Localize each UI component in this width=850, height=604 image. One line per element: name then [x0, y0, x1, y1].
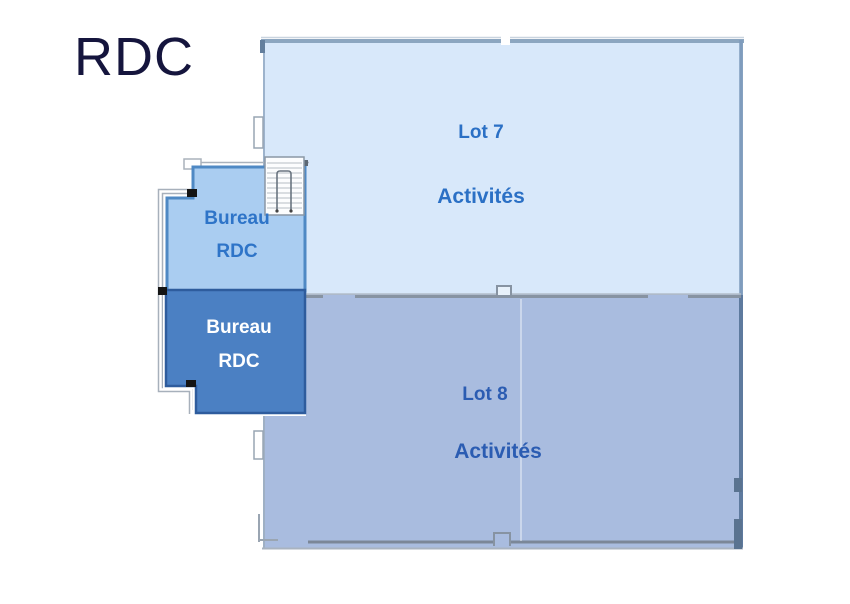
bureau-upper-label-line1: Bureau	[204, 202, 269, 235]
bureau-lower-label-line2: RDC	[206, 345, 271, 379]
lot7-category-label: Activités	[437, 185, 525, 209]
bureau-lower-label: Bureau RDC	[206, 311, 271, 379]
right-wall-stub-upper	[734, 478, 742, 492]
door-mark-bottom	[186, 380, 196, 387]
page-title: RDC	[74, 26, 194, 88]
bottom-door-bump	[494, 533, 510, 546]
staircase-icon	[265, 157, 304, 215]
lot8-left-window	[254, 431, 263, 459]
door-mark-top	[187, 189, 197, 197]
lot7-label: Lot 7	[458, 122, 503, 144]
right-wall-stub-lower	[734, 519, 742, 549]
floor-plan	[0, 0, 850, 604]
bureau-upper-label-line2: RDC	[204, 235, 269, 268]
floor-plan-page: RDC Lot 7 Activités Lot 8 Activités Bure…	[0, 0, 850, 604]
bureau-upper-label: Bureau RDC	[204, 202, 269, 268]
bureau-lower-label-line1: Bureau	[206, 311, 271, 345]
lot7-area	[264, 40, 742, 295]
lot8-label: Lot 8	[462, 384, 507, 406]
lot8-area	[263, 295, 742, 548]
divider-door-bump	[497, 286, 511, 295]
top-left-wall-stub	[260, 40, 265, 53]
door-mark-middle	[158, 287, 167, 295]
top-door-gap	[501, 35, 510, 45]
lot8-category-label: Activités	[454, 440, 542, 464]
lot7-left-window	[254, 117, 263, 148]
